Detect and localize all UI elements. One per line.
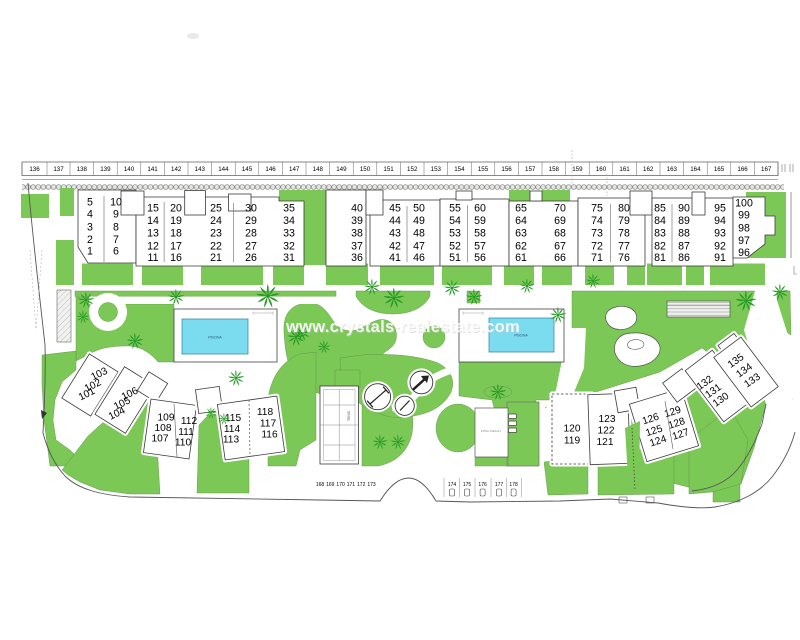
svg-text:63: 63 bbox=[515, 228, 527, 240]
svg-text:84: 84 bbox=[654, 215, 666, 227]
svg-text:138: 138 bbox=[77, 166, 88, 173]
svg-text:164: 164 bbox=[690, 166, 701, 173]
svg-text:20: 20 bbox=[170, 203, 182, 215]
svg-text:143: 143 bbox=[195, 166, 206, 173]
svg-text:144: 144 bbox=[218, 166, 229, 173]
svg-text:56: 56 bbox=[474, 252, 486, 264]
svg-text:95: 95 bbox=[714, 203, 726, 215]
svg-text:68: 68 bbox=[554, 228, 566, 240]
svg-text:120: 120 bbox=[564, 424, 581, 435]
svg-text:92: 92 bbox=[714, 240, 726, 252]
svg-text:78: 78 bbox=[618, 228, 630, 240]
svg-text:48: 48 bbox=[413, 228, 425, 240]
svg-text:55: 55 bbox=[449, 203, 461, 215]
svg-text:60: 60 bbox=[474, 203, 486, 215]
svg-text:96: 96 bbox=[738, 247, 750, 259]
svg-text:94: 94 bbox=[714, 215, 726, 227]
svg-text:83: 83 bbox=[654, 228, 666, 240]
svg-text:91: 91 bbox=[714, 252, 726, 264]
svg-text:111: 111 bbox=[178, 427, 194, 438]
svg-text:109: 109 bbox=[158, 413, 175, 424]
svg-text:71: 71 bbox=[591, 252, 603, 264]
svg-text:12: 12 bbox=[147, 240, 159, 252]
svg-text:65: 65 bbox=[515, 203, 527, 215]
svg-text:69: 69 bbox=[554, 215, 566, 227]
svg-text:73: 73 bbox=[591, 228, 603, 240]
svg-text:161: 161 bbox=[619, 166, 630, 173]
svg-text:140: 140 bbox=[124, 166, 135, 173]
svg-text:76: 76 bbox=[618, 252, 630, 264]
svg-text:19: 19 bbox=[170, 215, 182, 227]
svg-text:177: 177 bbox=[495, 482, 504, 488]
svg-text:89: 89 bbox=[678, 215, 690, 227]
svg-text:43: 43 bbox=[389, 228, 401, 240]
svg-text:28: 28 bbox=[245, 228, 257, 240]
svg-text:119: 119 bbox=[564, 436, 581, 447]
svg-text:137: 137 bbox=[53, 166, 64, 173]
svg-text:98: 98 bbox=[738, 223, 750, 235]
svg-text:156: 156 bbox=[501, 166, 512, 173]
svg-text:46: 46 bbox=[413, 252, 425, 264]
svg-text:23: 23 bbox=[210, 228, 222, 240]
svg-text:87: 87 bbox=[678, 240, 690, 252]
svg-text:158: 158 bbox=[549, 166, 560, 173]
svg-text:5: 5 bbox=[87, 197, 93, 209]
svg-text:97: 97 bbox=[738, 235, 750, 247]
svg-text:174: 174 bbox=[448, 482, 457, 488]
svg-text:176: 176 bbox=[478, 482, 487, 488]
svg-text:93: 93 bbox=[714, 228, 726, 240]
svg-text:168: 168 bbox=[316, 482, 325, 488]
svg-text:72: 72 bbox=[591, 240, 603, 252]
svg-text:61: 61 bbox=[515, 252, 527, 264]
svg-text:171: 171 bbox=[347, 482, 356, 488]
svg-text:167: 167 bbox=[761, 166, 772, 173]
svg-text:147: 147 bbox=[289, 166, 300, 173]
svg-text:39: 39 bbox=[351, 215, 363, 227]
svg-text:25: 25 bbox=[210, 203, 222, 215]
svg-text:100: 100 bbox=[735, 198, 753, 210]
svg-text:112: 112 bbox=[181, 416, 198, 427]
svg-text:77: 77 bbox=[618, 240, 630, 252]
svg-text:11: 11 bbox=[148, 252, 159, 264]
svg-text:86: 86 bbox=[678, 252, 690, 264]
svg-text:121: 121 bbox=[597, 437, 614, 448]
svg-text:107: 107 bbox=[152, 434, 169, 445]
svg-text:67: 67 bbox=[554, 240, 566, 252]
svg-text:90: 90 bbox=[678, 203, 690, 215]
svg-text:41: 41 bbox=[389, 252, 401, 264]
svg-text:88: 88 bbox=[678, 228, 690, 240]
svg-text:136: 136 bbox=[29, 166, 40, 173]
svg-text:172: 172 bbox=[357, 482, 366, 488]
svg-text:81: 81 bbox=[654, 252, 666, 264]
svg-text:152: 152 bbox=[407, 166, 418, 173]
svg-text:32: 32 bbox=[283, 240, 295, 252]
svg-text:117: 117 bbox=[260, 419, 277, 430]
svg-text:122: 122 bbox=[598, 426, 615, 437]
svg-text:4: 4 bbox=[87, 209, 93, 221]
svg-text:26: 26 bbox=[245, 252, 257, 264]
svg-text:146: 146 bbox=[265, 166, 276, 173]
svg-text:52: 52 bbox=[449, 240, 461, 252]
svg-text:75: 75 bbox=[591, 203, 603, 215]
svg-text:24: 24 bbox=[210, 215, 222, 227]
svg-text:80: 80 bbox=[618, 203, 630, 215]
svg-text:169: 169 bbox=[326, 482, 335, 488]
svg-text:62: 62 bbox=[515, 240, 527, 252]
svg-text:114: 114 bbox=[224, 424, 241, 435]
svg-text:PISCINA: PISCINA bbox=[208, 336, 222, 340]
svg-text:64: 64 bbox=[515, 215, 527, 227]
svg-text:18: 18 bbox=[170, 228, 182, 240]
svg-text:34: 34 bbox=[283, 215, 295, 227]
svg-text:16: 16 bbox=[170, 252, 182, 264]
svg-text:154: 154 bbox=[454, 166, 465, 173]
svg-text:50: 50 bbox=[413, 203, 425, 215]
svg-text:15: 15 bbox=[147, 203, 159, 215]
svg-text:74: 74 bbox=[591, 215, 603, 227]
svg-text:14: 14 bbox=[147, 215, 159, 227]
svg-text:148: 148 bbox=[313, 166, 324, 173]
svg-text:33: 33 bbox=[283, 228, 295, 240]
svg-text:42: 42 bbox=[389, 240, 401, 252]
svg-text:113: 113 bbox=[223, 435, 240, 446]
svg-text:66: 66 bbox=[554, 252, 566, 264]
svg-text:175: 175 bbox=[463, 482, 472, 488]
svg-text:153: 153 bbox=[431, 166, 442, 173]
svg-text:142: 142 bbox=[171, 166, 182, 173]
svg-text:7: 7 bbox=[113, 234, 119, 246]
svg-text:178: 178 bbox=[509, 482, 518, 488]
svg-text:162: 162 bbox=[643, 166, 654, 173]
svg-text:99: 99 bbox=[738, 210, 750, 222]
svg-text:35: 35 bbox=[283, 203, 295, 215]
svg-text:165: 165 bbox=[714, 166, 725, 173]
svg-text:82: 82 bbox=[654, 240, 666, 252]
svg-text:9: 9 bbox=[113, 209, 119, 221]
svg-text:123: 123 bbox=[599, 414, 616, 425]
svg-text:3: 3 bbox=[87, 222, 93, 234]
svg-text:27: 27 bbox=[245, 240, 257, 252]
svg-text:31: 31 bbox=[283, 252, 295, 264]
svg-text:118: 118 bbox=[257, 407, 274, 418]
svg-text:22: 22 bbox=[210, 240, 222, 252]
svg-text:8: 8 bbox=[113, 222, 119, 234]
svg-text:37: 37 bbox=[351, 240, 363, 252]
svg-text:40: 40 bbox=[351, 203, 363, 215]
svg-text:151: 151 bbox=[383, 166, 394, 173]
svg-text:www.crystals-realestate.com: www.crystals-realestate.com bbox=[285, 318, 520, 336]
svg-text:17: 17 bbox=[170, 240, 182, 252]
svg-text:45: 45 bbox=[389, 203, 401, 215]
svg-text:30: 30 bbox=[245, 203, 257, 215]
svg-text:163: 163 bbox=[667, 166, 678, 173]
svg-text:54: 54 bbox=[449, 215, 461, 227]
svg-text:1: 1 bbox=[87, 245, 93, 257]
svg-text:TENIS: TENIS bbox=[347, 410, 351, 421]
svg-text:38: 38 bbox=[351, 228, 363, 240]
svg-text:155: 155 bbox=[478, 166, 489, 173]
svg-text:70: 70 bbox=[554, 203, 566, 215]
svg-text:160: 160 bbox=[596, 166, 607, 173]
svg-text:59: 59 bbox=[474, 215, 486, 227]
svg-text:150: 150 bbox=[360, 166, 371, 173]
svg-text:2: 2 bbox=[87, 234, 93, 246]
svg-text:157: 157 bbox=[525, 166, 536, 173]
svg-text:145: 145 bbox=[242, 166, 253, 173]
svg-text:116: 116 bbox=[261, 430, 278, 441]
svg-text:170: 170 bbox=[336, 482, 345, 488]
svg-text:49: 49 bbox=[413, 215, 425, 227]
svg-text:79: 79 bbox=[618, 215, 630, 227]
svg-text:173: 173 bbox=[367, 482, 376, 488]
svg-text:149: 149 bbox=[336, 166, 347, 173]
svg-text:44: 44 bbox=[389, 215, 401, 227]
svg-text:ZONA JUEGOS: ZONA JUEGOS bbox=[481, 429, 501, 433]
svg-text:141: 141 bbox=[147, 166, 158, 173]
svg-text:139: 139 bbox=[100, 166, 111, 173]
svg-text:47: 47 bbox=[413, 240, 425, 252]
svg-text:36: 36 bbox=[351, 252, 363, 264]
svg-text:159: 159 bbox=[572, 166, 583, 173]
svg-text:51: 51 bbox=[449, 252, 461, 264]
svg-text:53: 53 bbox=[449, 228, 461, 240]
svg-text:57: 57 bbox=[474, 240, 486, 252]
svg-text:110: 110 bbox=[175, 438, 192, 449]
svg-text:29: 29 bbox=[245, 215, 257, 227]
svg-text:166: 166 bbox=[737, 166, 748, 173]
svg-text:108: 108 bbox=[155, 423, 172, 434]
svg-text:6: 6 bbox=[113, 245, 119, 257]
svg-text:85: 85 bbox=[654, 203, 666, 215]
svg-text:13: 13 bbox=[147, 228, 159, 240]
svg-text:58: 58 bbox=[474, 228, 486, 240]
svg-text:10: 10 bbox=[110, 197, 122, 209]
svg-text:21: 21 bbox=[210, 252, 222, 264]
